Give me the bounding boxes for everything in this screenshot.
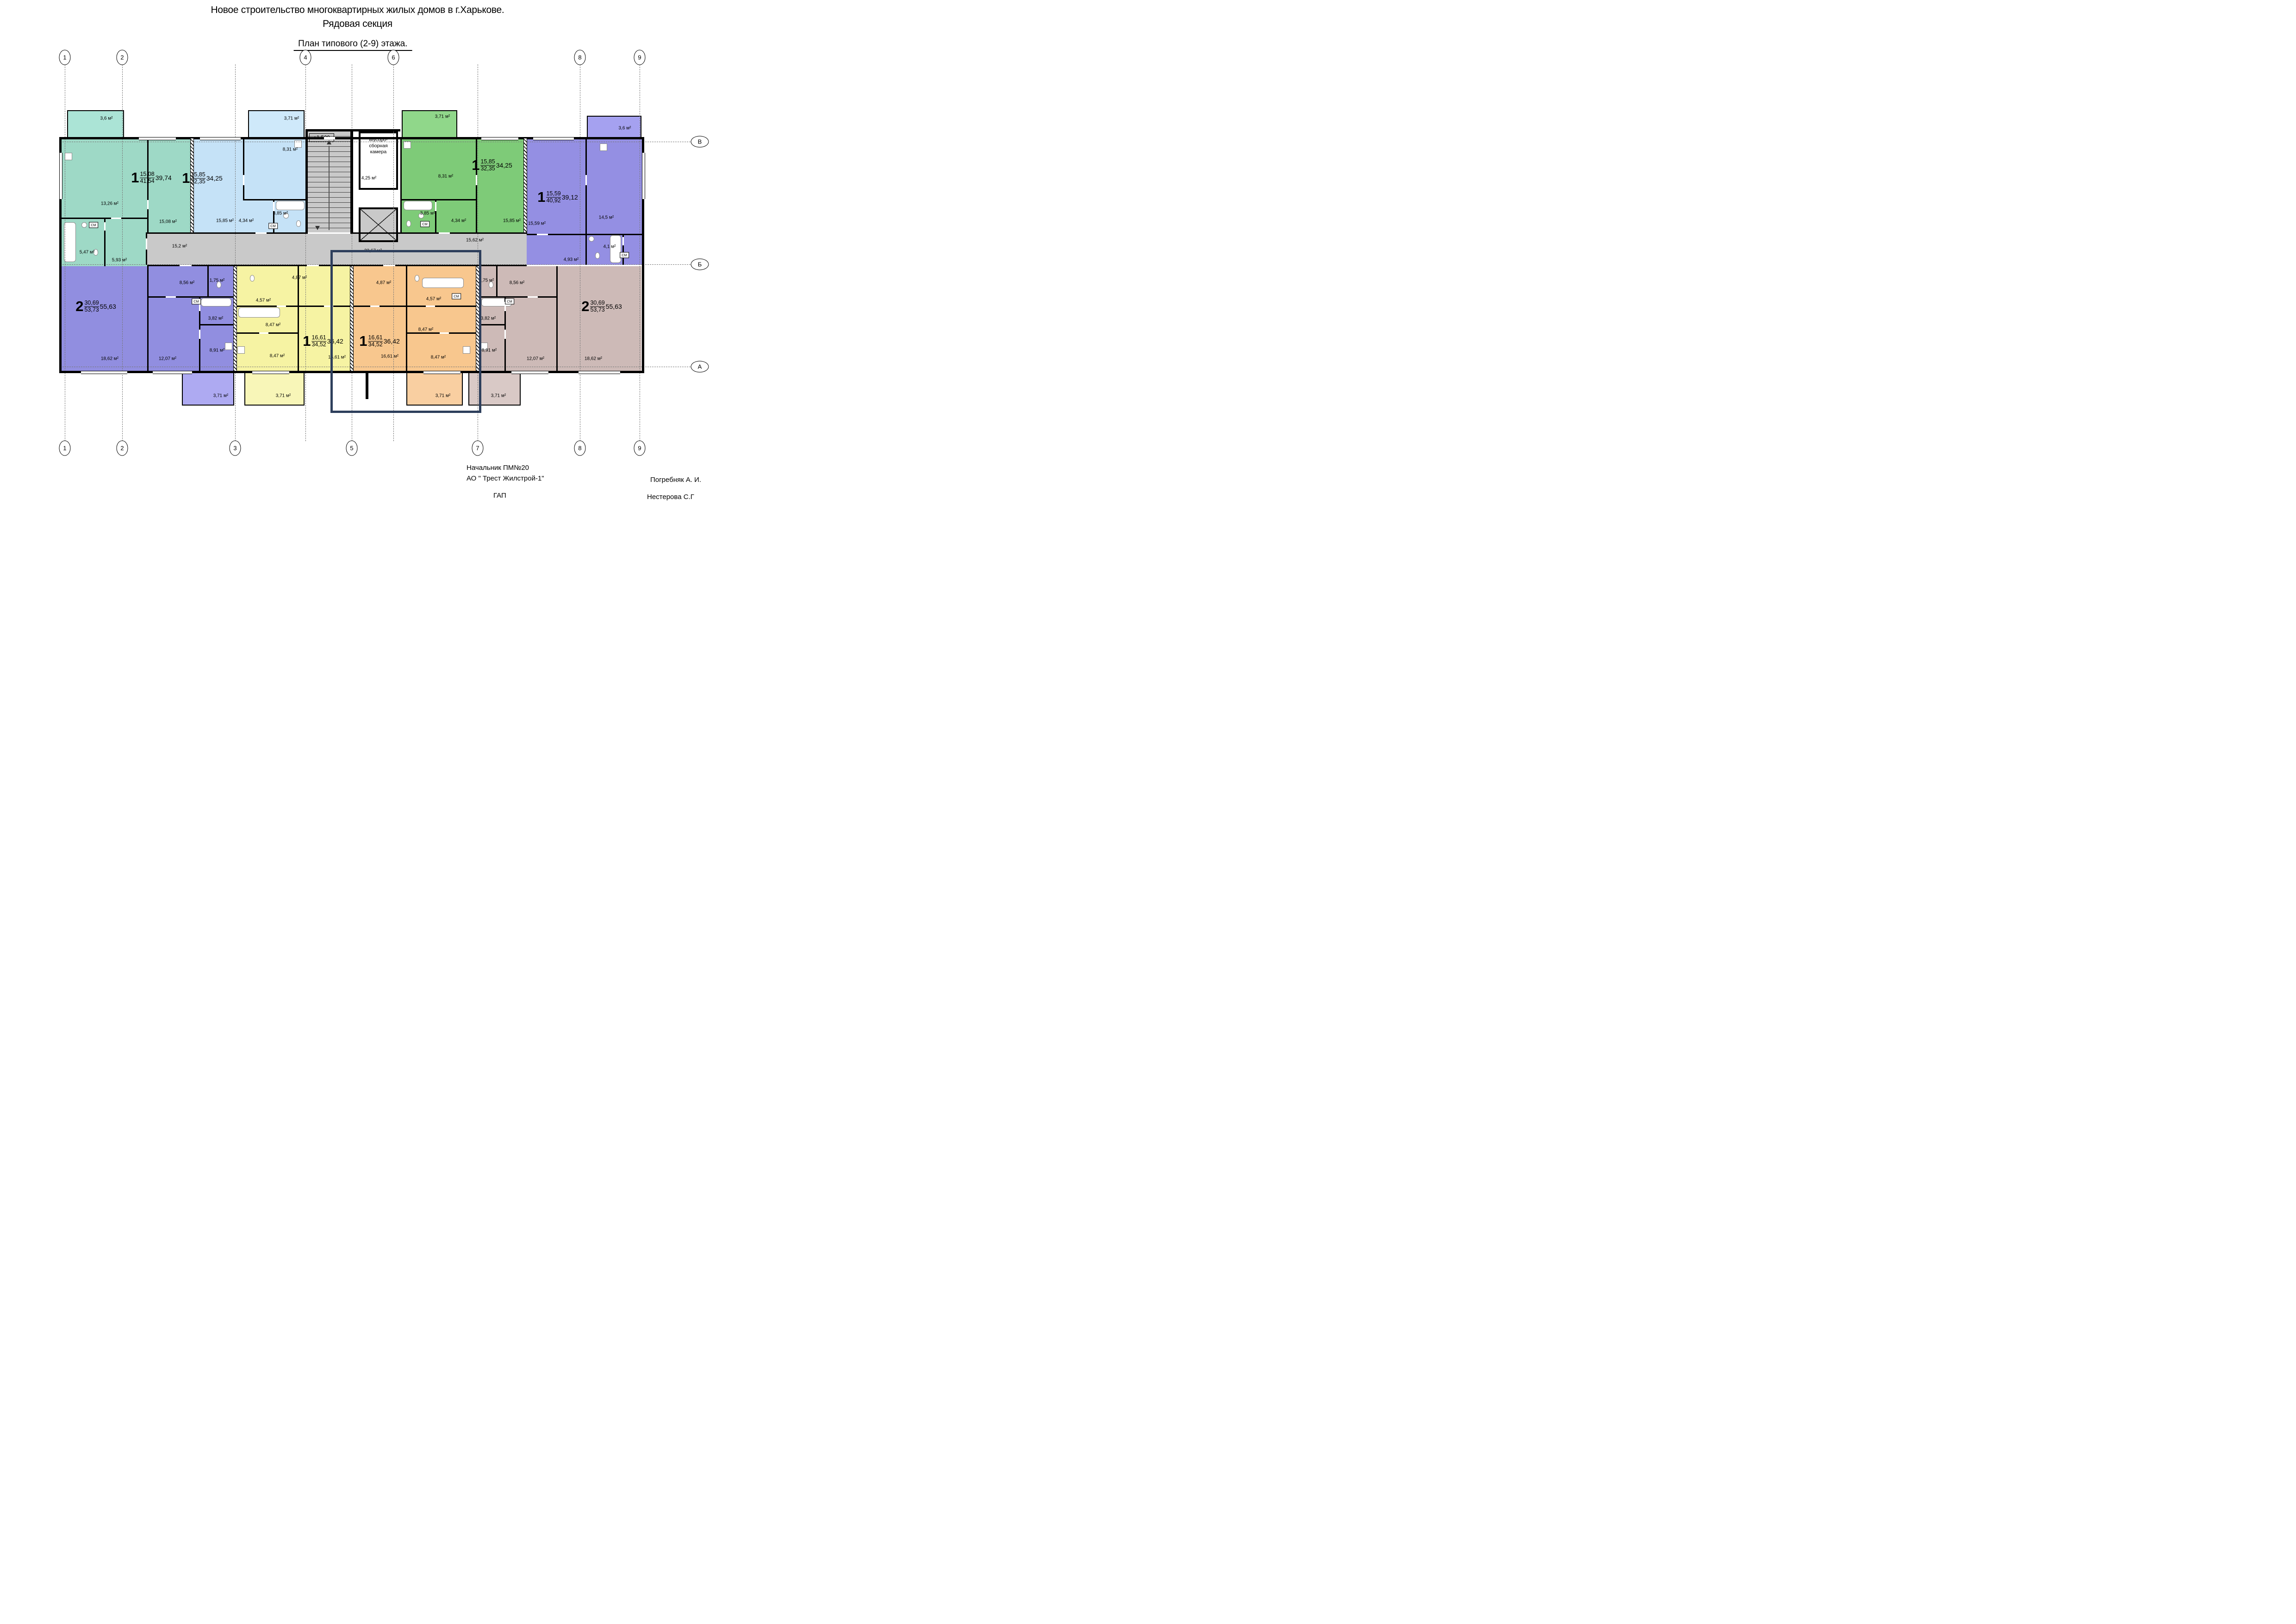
- apartment-rooms-count: 1: [303, 335, 311, 347]
- balcony-violet: [587, 116, 641, 138]
- signature-name2: Нестерова С.Г: [647, 493, 694, 501]
- partition-purple-5: [199, 324, 234, 325]
- room-area-label: 3,71 м²: [276, 394, 291, 399]
- toilet-icon: [250, 275, 255, 281]
- apartment-label-apt-1-room-teal: 115,0841,5439,74: [131, 171, 172, 185]
- axis-bubble-bottom-3: 3: [230, 441, 241, 456]
- room-area-label: 3,71 м²: [491, 394, 506, 399]
- axis-line-1: [65, 64, 65, 441]
- room-area-label: 8,91 м²: [482, 348, 497, 353]
- door-gap: [537, 234, 548, 235]
- window: [59, 153, 62, 199]
- room-area-label: 4,93 м²: [564, 257, 579, 262]
- room-area-label: 5,47 м²: [80, 250, 94, 255]
- stove-icon: [65, 153, 72, 160]
- apartment-area-fraction: 15,8532,35: [191, 172, 205, 185]
- total-area: 32,35: [480, 166, 495, 172]
- room-area-label: 12,07 м²: [527, 356, 544, 362]
- door-gap: [111, 218, 121, 219]
- window: [81, 371, 127, 374]
- living-area: 30,69: [590, 300, 604, 307]
- partition-teal-1: [147, 138, 149, 232]
- door-gap: [622, 237, 624, 245]
- corridor-wall-top-left: [147, 232, 306, 234]
- room-area-label: 15,2 м²: [172, 244, 187, 249]
- overall-area: 34,25: [496, 162, 512, 169]
- living-area: 30,69: [84, 300, 99, 307]
- room-area-label: 3,71 м²: [435, 114, 450, 119]
- partition-beige-3: [496, 266, 498, 296]
- room-area-label: 3,82 м²: [208, 316, 223, 321]
- room-area-label: 3,6 м²: [619, 126, 631, 131]
- axis-bubble-top-1: 1: [59, 50, 71, 65]
- overall-area: 55,63: [100, 303, 116, 310]
- partition-violet-1: [585, 138, 587, 265]
- total-area: 34,52: [311, 342, 326, 348]
- bathtub-icon: [201, 298, 231, 306]
- apartment-label-apt-2-room-purple: 230,6953,7355,63: [75, 300, 116, 313]
- axis-bubble-bottom-9: 9: [634, 441, 646, 456]
- party-wall-green-violet: [524, 138, 527, 233]
- stove-icon: [237, 346, 245, 354]
- axis-line-8: [580, 64, 580, 441]
- balcony-purple: [182, 372, 234, 406]
- axis-bubble-top-9: 9: [634, 50, 646, 65]
- room-area-label: 1,75 м²: [210, 278, 224, 283]
- door-gap: [476, 175, 477, 185]
- partition-blue-1: [243, 138, 244, 200]
- room-area-label: 13,26 м²: [101, 201, 118, 206]
- washing-machine-label: СМ: [420, 221, 429, 227]
- room-area-label: 3,71 м²: [284, 116, 299, 121]
- door-gap: [307, 265, 319, 266]
- apartment-area-fraction: 30,6953,73: [590, 300, 604, 313]
- balcony-blue: [248, 110, 305, 138]
- stove-icon: [600, 144, 607, 151]
- apartment-rooms-count: 1: [472, 159, 479, 171]
- partition-purple-2: [147, 296, 234, 298]
- window: [579, 371, 620, 374]
- toilet-icon: [296, 220, 301, 227]
- window: [481, 137, 518, 140]
- apartment-label-apt-2-room-beige: 230,6953,7355,63: [581, 300, 622, 313]
- total-area: 41,54: [140, 178, 154, 185]
- total-area: 40,92: [546, 198, 560, 204]
- room-area-label: 12,07 м²: [159, 356, 176, 362]
- axis-line-4: [305, 64, 306, 441]
- partition-purple-1: [147, 266, 149, 371]
- room-area-label: 5,93 м²: [112, 258, 127, 263]
- door-gap: [199, 330, 200, 339]
- total-area: 32,35: [191, 179, 205, 185]
- party-wall-purple-yellow: [234, 266, 236, 371]
- apartment-label-apt-1-room-blue: 115,8532,3534,25: [182, 172, 223, 185]
- apartment-label-apt-1-room-violet: 115,5940,9239,12: [537, 191, 578, 204]
- window: [252, 371, 289, 374]
- apartment-area-fraction: 16,6134,52: [311, 335, 326, 348]
- apartment-rooms-count: 2: [75, 300, 83, 312]
- partition-yellow-1: [298, 266, 299, 371]
- window: [533, 137, 574, 140]
- toilet-icon: [406, 220, 411, 227]
- room-area-label: 4,25 м²: [361, 176, 376, 181]
- overall-area: 39,12: [562, 194, 578, 201]
- sink-icon: [589, 236, 594, 242]
- balcony-teal: [67, 110, 124, 138]
- total-area: 53,73: [84, 307, 99, 313]
- door-gap: [528, 296, 538, 298]
- window: [642, 153, 645, 199]
- apartment-area-fraction: 15,0841,54: [140, 171, 154, 185]
- room-area-label: 3,6 м²: [100, 116, 113, 121]
- room-area-label: 8,56 м²: [510, 281, 524, 286]
- partition-beige-1: [556, 266, 558, 371]
- axis-bubble-top-8: 8: [574, 50, 586, 65]
- partition-green-1: [476, 138, 477, 232]
- axis-bubble-bottom-5: 5: [346, 441, 358, 456]
- door-gap: [180, 265, 192, 266]
- overall-area: 34,25: [206, 175, 223, 182]
- window: [511, 371, 548, 374]
- door-gap: [439, 232, 450, 234]
- living-area: 15,85: [191, 172, 205, 179]
- party-wall-teal-blue: [191, 138, 193, 233]
- door-gap: [146, 238, 147, 250]
- partition-beige-5: [479, 324, 504, 325]
- room-area-label: 15,85 м²: [216, 219, 234, 224]
- apartment-rooms-count: 1: [131, 172, 139, 184]
- axis-bubble-top-4: 4: [300, 50, 311, 65]
- living-area: 15,59: [546, 191, 560, 198]
- room-area-label: 8,31 м²: [283, 147, 298, 152]
- bathtub-icon: [404, 201, 432, 210]
- room-area-label: 4,34 м²: [239, 219, 254, 224]
- staircase-stringer: [329, 146, 330, 230]
- apartment-rooms-count: 1: [182, 172, 190, 184]
- living-area: 15,08: [140, 171, 154, 178]
- overall-area: 55,63: [606, 303, 622, 310]
- sink-icon: [81, 222, 87, 228]
- axis-bubble-bottom-2: 2: [117, 441, 128, 456]
- door-gap: [585, 175, 587, 185]
- signature-position2: ГАП: [493, 492, 506, 500]
- apartment-area-fraction: 30,6953,73: [84, 300, 99, 313]
- room-area-label: 14,5 м²: [599, 215, 614, 220]
- axis-bubble-bottom-7: 7: [472, 441, 484, 456]
- bathtub-icon: [276, 201, 305, 210]
- room-area-label: 15,08 м²: [159, 219, 177, 225]
- window: [153, 371, 192, 374]
- room-area-label: 8,31 м²: [438, 174, 453, 179]
- bathtub-icon: [64, 222, 76, 262]
- toilet-icon: [595, 252, 600, 259]
- washing-machine-label: СМ: [268, 223, 278, 229]
- axis-bubble-top-2: 2: [117, 50, 128, 65]
- partition-beige-2: [479, 296, 556, 298]
- apartment-rooms-count: 1: [537, 191, 545, 203]
- elevator-shaft: [359, 207, 398, 242]
- door-gap: [527, 265, 539, 266]
- axis-line-v-row: [60, 142, 691, 142]
- washing-machine-label: СМ: [620, 252, 629, 258]
- axis-bubble-bottom-8: 8: [574, 441, 586, 456]
- room-area-label: 8,47 м²: [270, 354, 285, 359]
- room-area-label: 8,47 м²: [266, 323, 280, 328]
- living-area: 16,61: [311, 335, 326, 342]
- door-gap: [166, 296, 176, 298]
- door-gap: [277, 306, 286, 307]
- room-area-label: 4,57 м²: [256, 298, 271, 303]
- axis-line-9: [640, 64, 640, 441]
- stove-icon: [225, 343, 232, 350]
- partition-blue-2: [243, 199, 306, 200]
- room-area-label: 18,62 м²: [585, 356, 602, 362]
- washing-machine-label: СМ: [89, 222, 98, 228]
- room-area-label: 8,91 м²: [210, 348, 224, 353]
- apartment-label-apt-1-room-green: 115,8532,3534,25: [472, 159, 512, 172]
- garbage-chamber-label: Мусоро- сборная камера: [361, 137, 396, 155]
- partition-green-2: [402, 199, 476, 200]
- signature-position-line1: Начальник ПМ№20: [467, 464, 529, 472]
- axis-bubble-right-А: А: [691, 361, 709, 373]
- total-area: 53,73: [590, 307, 604, 313]
- room-area-label: 8,56 м²: [180, 281, 194, 286]
- highlight-box: [330, 250, 481, 413]
- door-gap: [243, 175, 244, 185]
- room-area-label: 3,85 м²: [273, 211, 288, 216]
- signature-name1: Погребняк А. И.: [650, 476, 701, 484]
- balcony-yellow: [244, 372, 305, 406]
- axis-bubble-right-Б: Б: [691, 259, 709, 270]
- bathtub-icon: [238, 307, 280, 318]
- door-gap: [435, 202, 436, 211]
- living-area: 15,85: [480, 159, 495, 166]
- floor-plan: +1.500 Мусоро- сборная камера: [0, 0, 715, 506]
- washing-machine-label: СМ: [192, 299, 201, 305]
- door-gap: [324, 137, 335, 139]
- apartment-area-fraction: 15,5940,92: [546, 191, 560, 204]
- room-area-label: 3,71 м²: [213, 394, 228, 399]
- axis-bubble-right-В: В: [691, 136, 709, 148]
- axis-bubble-top-6: 6: [388, 50, 399, 65]
- door-gap: [147, 200, 149, 209]
- room-area-label: 4,34 м²: [451, 219, 466, 224]
- partition-purple-3: [207, 266, 209, 296]
- window: [200, 137, 241, 140]
- apartment-area-fraction: 15,8532,35: [480, 159, 495, 172]
- axis-line-3: [235, 64, 236, 441]
- door-gap: [504, 330, 506, 339]
- wall-blue-stairs: [305, 131, 308, 234]
- axis-line-2: [122, 64, 123, 441]
- overall-area: 39,74: [156, 174, 172, 181]
- room-area-label: 3,85 м²: [420, 211, 435, 216]
- room-area-label: 18,62 м²: [101, 356, 118, 362]
- room-area-label: 15,59 м²: [528, 221, 546, 226]
- room-area-label: 15,62 м²: [466, 238, 484, 243]
- room-area-label: 4,1 м²: [604, 244, 616, 250]
- axis-bubble-bottom-1: 1: [59, 441, 71, 456]
- garbage-chamber-room: Мусоро- сборная камера: [359, 131, 398, 190]
- door-gap: [259, 332, 268, 334]
- stairs-down-arrow-icon: [315, 226, 320, 230]
- stove-icon: [404, 141, 411, 149]
- door-gap: [273, 202, 274, 211]
- apartment-rooms-count: 2: [581, 300, 589, 312]
- door-gap: [255, 232, 267, 234]
- wall-green-left: [400, 138, 402, 233]
- drawing-sheet: Новое строительство многоквартирных жилы…: [0, 0, 715, 506]
- door-gap: [104, 222, 106, 231]
- wall-stairs-right: [350, 131, 353, 234]
- room-area-label: 15,85 м²: [503, 219, 521, 224]
- window: [139, 137, 176, 140]
- room-area-label: 4,87 м²: [292, 275, 307, 281]
- room-area-label: 3,82 м²: [481, 316, 496, 321]
- signature-position-line2: АО " Трест Жилстрой-1": [467, 475, 544, 482]
- washing-machine-label: СМ: [505, 299, 514, 305]
